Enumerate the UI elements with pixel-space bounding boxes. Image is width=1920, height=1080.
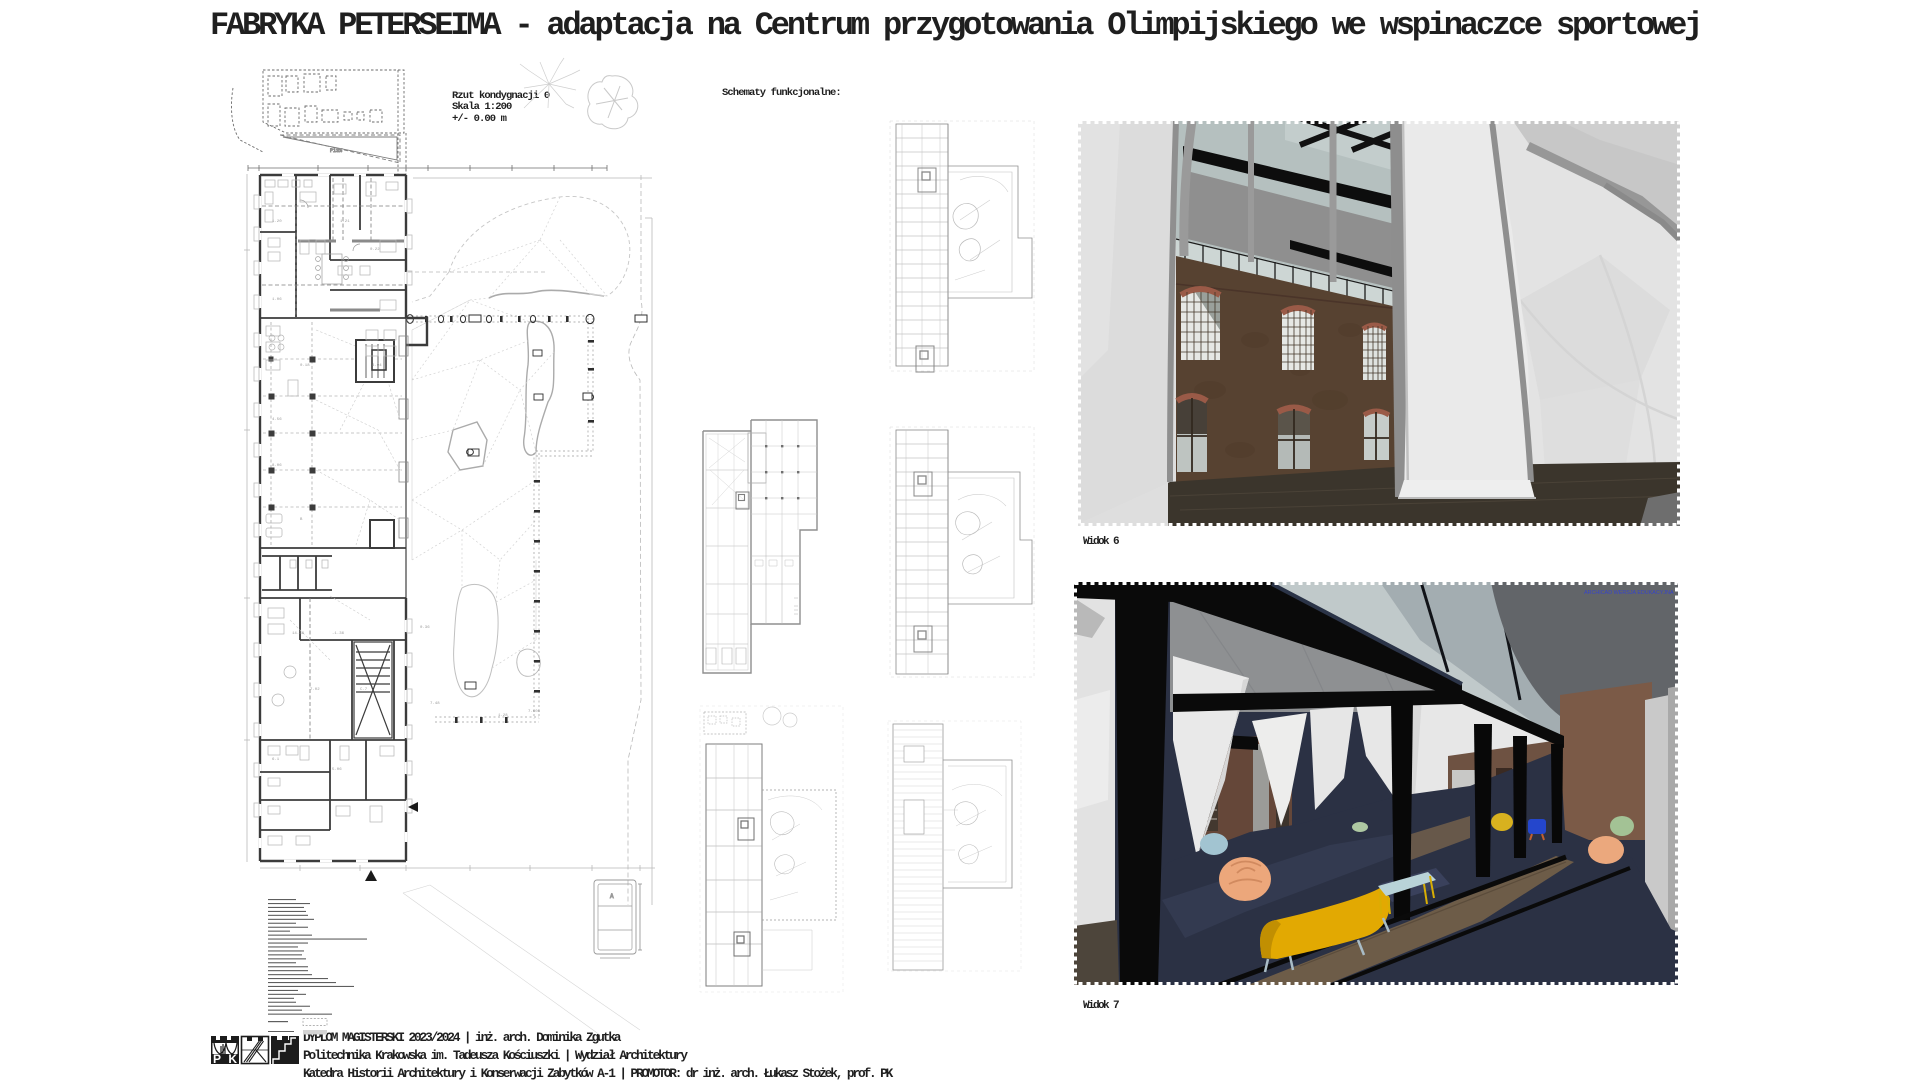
svg-text:B: B xyxy=(300,518,303,522)
svg-text:ARCHICAD WERSJA EDUKACYJNA: ARCHICAD WERSJA EDUKACYJNA xyxy=(1584,590,1674,596)
svg-text:A: A xyxy=(610,893,614,900)
svg-text:-1.36: -1.36 xyxy=(332,632,345,636)
svg-text:6.1: 6.1 xyxy=(272,758,280,762)
svg-text:1.06: 1.06 xyxy=(272,298,282,302)
svg-text:7.608: 7.608 xyxy=(528,710,541,714)
svg-text:4.04: 4.04 xyxy=(372,364,382,368)
svg-text:8.06: 8.06 xyxy=(272,464,282,468)
svg-text:1.20: 1.20 xyxy=(272,220,282,224)
svg-text:1.21: 1.21 xyxy=(340,220,350,224)
svg-text:0.36: 0.36 xyxy=(420,626,430,630)
svg-text:7.02: 7.02 xyxy=(310,688,320,692)
svg-text:0.18: 0.18 xyxy=(300,364,310,368)
svg-text:P13%: P13% xyxy=(330,148,342,154)
svg-text:14.36: 14.36 xyxy=(292,632,305,636)
svg-text:5.06: 5.06 xyxy=(332,768,342,772)
svg-text:0.22: 0.22 xyxy=(370,248,380,252)
svg-text:1.28: 1.28 xyxy=(498,714,508,718)
svg-text:C.7: C.7 xyxy=(360,688,368,692)
svg-text:7.48: 7.48 xyxy=(430,702,440,706)
svg-text:4.56: 4.56 xyxy=(272,418,282,422)
